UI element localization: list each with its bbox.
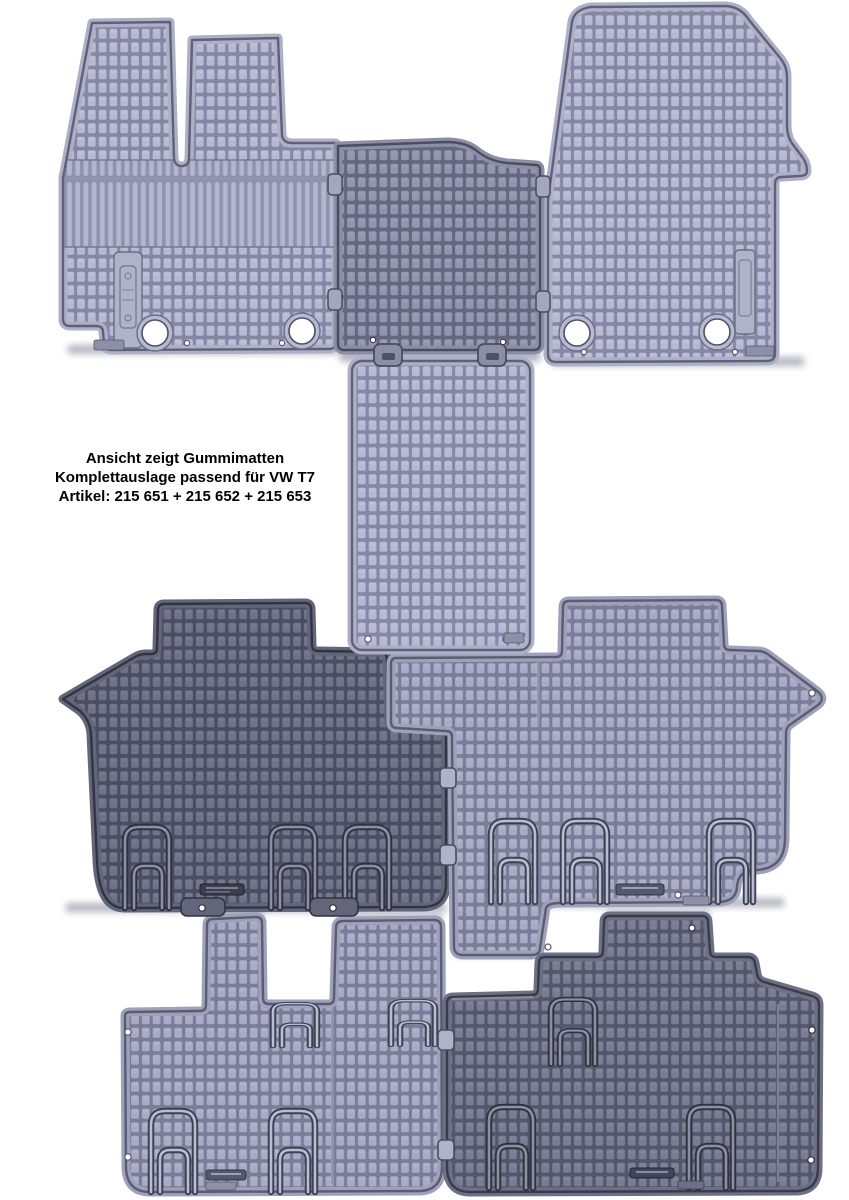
floor-mats-illustration <box>0 0 849 1200</box>
pin-hole <box>809 690 815 696</box>
label-plate <box>678 1181 704 1189</box>
label-plate <box>504 633 524 643</box>
pin-hole <box>689 925 695 931</box>
label-plate <box>746 346 774 356</box>
pin-hole <box>370 337 375 342</box>
vehicle-emblem-plate <box>735 250 755 334</box>
caption-line-2: Komplettauslage passend für VW T7 <box>22 468 348 487</box>
brand-plate <box>616 884 664 895</box>
label-plate <box>206 1182 236 1190</box>
label-plate <box>683 896 709 905</box>
pin-hole <box>500 339 505 344</box>
pin-hole <box>809 1027 815 1033</box>
pin-hole <box>732 349 737 354</box>
caption-line-1: Ansicht zeigt Gummimatten <box>22 449 348 468</box>
pin-hole <box>808 1157 814 1163</box>
pin-hole <box>365 636 371 642</box>
front-center-mat <box>328 142 550 366</box>
pin-hole <box>184 340 189 345</box>
pin-hole <box>581 349 586 354</box>
label-plate <box>94 340 124 350</box>
pin-hole <box>675 892 681 898</box>
third-row-left-mat <box>125 917 442 1192</box>
product-image: Ansicht zeigt Gummimatten Komplettauslag… <box>0 0 849 1200</box>
heel-rib-band <box>58 160 340 247</box>
brand-plate <box>200 884 244 895</box>
front-driver-mat <box>58 22 340 351</box>
pin-hole <box>125 1154 131 1160</box>
pin-hole <box>279 340 284 345</box>
pin-hole <box>125 1029 131 1035</box>
front-passenger-mat <box>548 6 807 362</box>
caption-line-3: Artikel: 215 651 + 215 652 + 215 653 <box>22 487 348 506</box>
caption: Ansicht zeigt Gummimatten Komplettauslag… <box>22 449 348 506</box>
center-aisle-runner <box>352 361 530 650</box>
